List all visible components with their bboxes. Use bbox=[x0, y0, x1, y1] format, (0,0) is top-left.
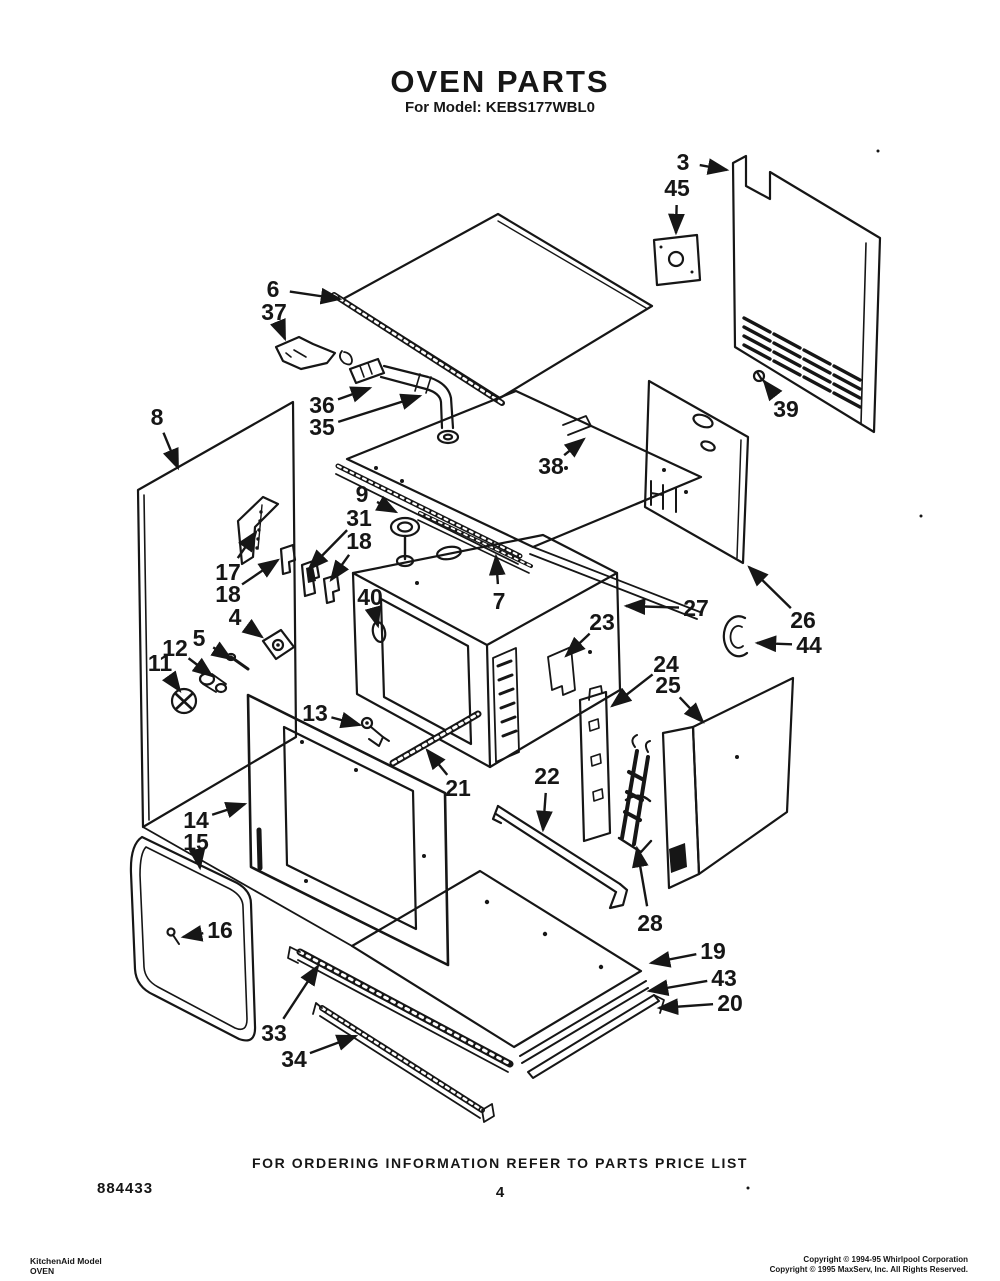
part-number-label: 27 bbox=[683, 595, 709, 621]
part-number-label: 9 bbox=[356, 481, 369, 507]
callout-5: 5 bbox=[193, 625, 231, 659]
floor-edge-line bbox=[143, 827, 352, 946]
copyright-line-2: Copyright © 1995 MaxServ, Inc. All Right… bbox=[770, 1265, 968, 1275]
ordering-note: FOR ORDERING INFORMATION REFER TO PARTS … bbox=[0, 1155, 1000, 1171]
part-number-label: 22 bbox=[534, 763, 560, 789]
mounting-clips bbox=[281, 545, 339, 603]
part-number-label: 33 bbox=[261, 1020, 287, 1046]
leader-line bbox=[659, 1004, 713, 1008]
part-number-label: 45 bbox=[664, 175, 690, 201]
leader-line bbox=[242, 560, 278, 584]
part-number-label: 43 bbox=[711, 965, 737, 991]
leader-line bbox=[283, 966, 318, 1019]
knob-hardware bbox=[172, 630, 294, 713]
callout-38: 38 bbox=[538, 439, 584, 479]
leader-line bbox=[757, 643, 792, 644]
door-frame bbox=[248, 695, 448, 965]
leader-line bbox=[680, 697, 703, 722]
leader-line bbox=[212, 804, 245, 815]
part-number-label: 20 bbox=[717, 990, 743, 1016]
callout-43: 43 bbox=[649, 965, 737, 991]
callout-45: 45 bbox=[664, 175, 690, 233]
part-number-label: 23 bbox=[589, 609, 615, 635]
part-number-label: 8 bbox=[151, 404, 164, 430]
small-bracket bbox=[276, 337, 335, 369]
callout-19: 19 bbox=[651, 938, 726, 964]
callout-20: 20 bbox=[659, 990, 743, 1016]
part-number-label: 21 bbox=[445, 775, 471, 801]
leader-line bbox=[764, 381, 775, 396]
callout-18: 18 bbox=[331, 528, 372, 580]
channel-bracket bbox=[580, 686, 610, 841]
part-number-label: 35 bbox=[309, 414, 335, 440]
part-number-label: 4 bbox=[229, 604, 242, 630]
leader-line bbox=[249, 627, 262, 637]
leader-line bbox=[676, 205, 677, 233]
callout-13: 13 bbox=[302, 700, 360, 726]
part-number-label: 18 bbox=[346, 528, 372, 554]
part-number-label: 13 bbox=[302, 700, 328, 726]
part-callouts: 3453963736358931181718404512113872726442… bbox=[148, 149, 822, 1072]
callout-44: 44 bbox=[757, 632, 822, 658]
left-side-panel bbox=[138, 402, 296, 827]
leader-line bbox=[427, 750, 447, 775]
part-number-label: 37 bbox=[261, 299, 287, 325]
leader-line bbox=[280, 328, 285, 339]
corner-model-line1: KitchenAid Model bbox=[30, 1256, 102, 1266]
callout-21: 21 bbox=[427, 750, 471, 801]
vent-ring bbox=[724, 616, 747, 656]
rear-side-wall bbox=[645, 381, 748, 563]
parts-catalog-page: 3453963736358931181718404512113872726442… bbox=[0, 0, 1000, 1281]
leader-line bbox=[213, 647, 231, 659]
leader-line bbox=[651, 954, 696, 963]
part-number-label: 16 bbox=[207, 917, 233, 943]
leader-line bbox=[377, 502, 396, 512]
rear-vent-panel bbox=[733, 156, 880, 432]
part-number-label: 25 bbox=[655, 672, 681, 698]
part-number-label: 44 bbox=[796, 632, 822, 658]
door-gasket bbox=[131, 837, 255, 1040]
leader-line bbox=[649, 981, 707, 991]
model-subtitle: For Model: KEBS177WBL0 bbox=[0, 99, 1000, 116]
corner-model-line2: OVEN bbox=[30, 1266, 102, 1276]
callout-4: 4 bbox=[229, 604, 262, 637]
callout-8: 8 bbox=[151, 404, 178, 468]
part-number-label: 3 bbox=[677, 149, 690, 175]
part-number-label: 11 bbox=[148, 650, 173, 676]
part-number-label: 5 bbox=[193, 625, 206, 651]
leader-line bbox=[566, 634, 590, 656]
leader-line bbox=[543, 793, 546, 830]
callout-16: 16 bbox=[183, 917, 233, 943]
leader-line bbox=[749, 567, 791, 608]
part-number-label: 28 bbox=[637, 910, 663, 936]
leader-line bbox=[170, 677, 180, 691]
bottom-panels bbox=[352, 871, 664, 1078]
leader-line bbox=[700, 165, 727, 170]
document-number: 884433 bbox=[97, 1180, 153, 1197]
callout-34: 34 bbox=[281, 1036, 356, 1072]
copyright-note: Copyright © 1994-95 Whirlpool Corporatio… bbox=[770, 1255, 968, 1274]
leader-line bbox=[338, 388, 370, 399]
scan-specks bbox=[747, 150, 923, 1190]
callout-3: 3 bbox=[677, 149, 727, 175]
latch-assembly bbox=[619, 735, 651, 852]
leader-line bbox=[496, 556, 498, 584]
part-number-label: 26 bbox=[790, 607, 816, 633]
part-number-label: 34 bbox=[281, 1046, 307, 1072]
latch-keeper bbox=[362, 718, 389, 746]
grommet bbox=[391, 518, 419, 566]
corner-model-note: KitchenAid Model OVEN bbox=[30, 1256, 102, 1276]
page-title: OVEN PARTS bbox=[0, 64, 1000, 100]
callout-39: 39 bbox=[764, 381, 799, 422]
part-number-label: 15 bbox=[183, 829, 209, 855]
leader-line bbox=[626, 606, 679, 608]
right-side-panel bbox=[663, 678, 793, 888]
leader-line bbox=[331, 717, 360, 725]
leader-line bbox=[564, 439, 584, 455]
chassis-deck bbox=[336, 391, 701, 619]
callout-23: 23 bbox=[566, 609, 615, 656]
leader-line bbox=[163, 433, 178, 468]
leader-line bbox=[199, 859, 200, 868]
leader-line bbox=[637, 848, 647, 906]
callout-28: 28 bbox=[637, 848, 663, 936]
part-number-label: 7 bbox=[493, 588, 506, 614]
callout-40: 40 bbox=[357, 584, 383, 626]
leader-line bbox=[331, 555, 349, 580]
callout-33: 33 bbox=[261, 966, 318, 1046]
part-number-label: 38 bbox=[538, 453, 564, 479]
leader-line bbox=[309, 530, 347, 569]
callout-25: 25 bbox=[655, 672, 703, 722]
callout-26: 26 bbox=[749, 567, 816, 633]
leader-line bbox=[183, 933, 203, 937]
leader-line bbox=[338, 396, 420, 422]
exploded-diagram: 3453963736358931181718404512113872726442… bbox=[0, 0, 1000, 1281]
copyright-line-1: Copyright © 1994-95 Whirlpool Corporatio… bbox=[770, 1255, 968, 1265]
leader-line bbox=[189, 658, 212, 676]
part-number-label: 39 bbox=[773, 396, 799, 422]
part-number-label: 40 bbox=[357, 584, 383, 610]
part-number-label: 19 bbox=[700, 938, 726, 964]
callout-37: 37 bbox=[261, 299, 287, 339]
mounting-plate bbox=[654, 235, 700, 285]
front-trim-strips bbox=[288, 947, 510, 1122]
callout-22: 22 bbox=[534, 763, 560, 830]
callout-7: 7 bbox=[493, 556, 506, 614]
leader-line bbox=[310, 1036, 356, 1053]
